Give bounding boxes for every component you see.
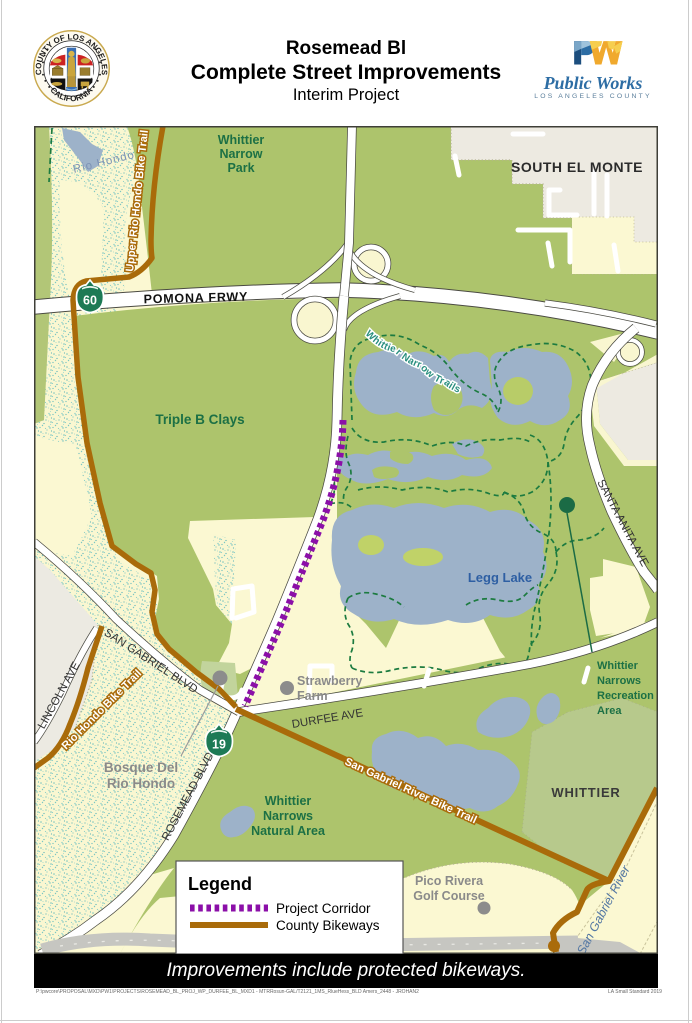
svg-text:Rio Hondo: Rio Hondo — [107, 776, 175, 791]
svg-text:Farm: Farm — [297, 689, 328, 703]
svg-text:Narrows: Narrows — [263, 809, 313, 823]
svg-text:County Bikeways: County Bikeways — [276, 918, 380, 933]
svg-text:Natural Area: Natural Area — [251, 824, 326, 838]
svg-text:Whittier: Whittier — [218, 133, 265, 147]
svg-text:SOUTH EL MONTE: SOUTH EL MONTE — [511, 159, 643, 175]
svg-text:Strawberry: Strawberry — [297, 674, 362, 688]
svg-text:Narrow: Narrow — [219, 147, 262, 161]
svg-text:Legg Lake: Legg Lake — [468, 570, 532, 585]
svg-text:60: 60 — [83, 294, 97, 308]
svg-text:WHITTIER: WHITTIER — [551, 785, 620, 800]
svg-text:Bosque Del: Bosque Del — [104, 760, 178, 775]
svg-text:19: 19 — [212, 738, 226, 752]
svg-text:Recreation: Recreation — [597, 690, 654, 702]
svg-text:LOS ANGELES COUNTY: LOS ANGELES COUNTY — [534, 93, 651, 100]
svg-text:Narrows: Narrows — [597, 675, 641, 687]
svg-text:Park: Park — [227, 161, 254, 175]
svg-text:POMONA FRWY: POMONA FRWY — [143, 290, 248, 307]
svg-text:Whittier: Whittier — [265, 794, 312, 808]
svg-text:Area: Area — [597, 705, 622, 717]
svg-text:Golf Course: Golf Course — [413, 889, 485, 903]
svg-text:Legend: Legend — [188, 874, 252, 894]
svg-text:Triple B Clays: Triple B Clays — [155, 412, 244, 427]
svg-text:Public Works: Public Works — [543, 73, 643, 93]
svg-text:Whittier: Whittier — [597, 660, 639, 672]
svg-text:Project Corridor: Project Corridor — [276, 901, 371, 916]
svg-text:Pico Rivera: Pico Rivera — [415, 874, 484, 888]
